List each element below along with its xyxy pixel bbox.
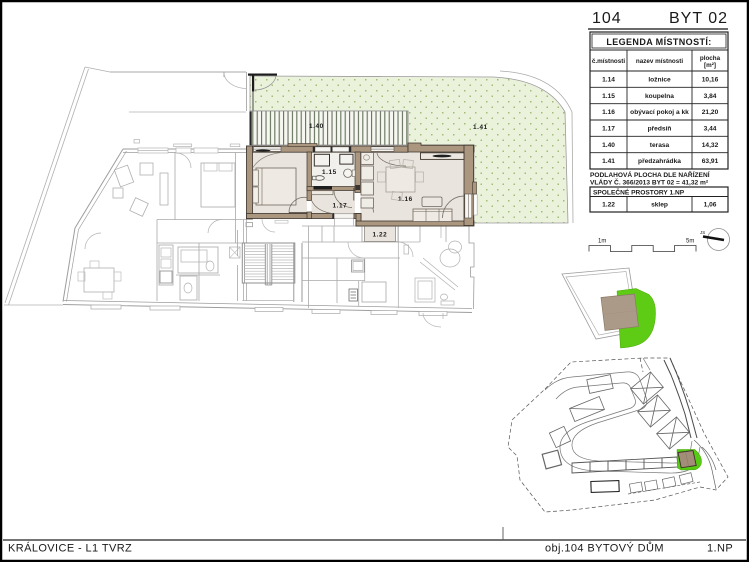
svg-text:obývací pokoj a kk: obývací pokoj a kk: [630, 109, 689, 116]
svg-text:předsíň: předsíň: [648, 126, 672, 133]
svg-text:1.22: 1.22: [373, 232, 388, 239]
svg-text:1.41: 1.41: [602, 158, 615, 165]
svg-text:5m: 5m: [686, 239, 694, 245]
svg-text:PODLAHOVÁ PLOCHA DLE NAŘÍZENÍ: PODLAHOVÁ PLOCHA DLE NAŘÍZENÍ: [590, 170, 710, 179]
svg-text:1.22: 1.22: [602, 202, 615, 209]
svg-text:21,20: 21,20: [702, 109, 719, 116]
svg-text:1.16: 1.16: [398, 196, 413, 203]
svg-text:3,44: 3,44: [704, 126, 717, 133]
svg-text:1.15: 1.15: [322, 169, 337, 176]
svg-text:plocha: plocha: [700, 55, 721, 62]
svg-text:předzahrádka: předzahrádka: [638, 158, 681, 165]
svg-text:LEGENDA MÍSTNOSTÍ:: LEGENDA MÍSTNOSTÍ:: [606, 37, 711, 47]
svg-text:1.15: 1.15: [602, 93, 615, 100]
svg-text:1.40: 1.40: [309, 123, 324, 130]
svg-text:SPOLEČNÉ PROSTORY 1.NP: SPOLEČNÉ PROSTORY 1.NP: [593, 188, 685, 197]
svg-text:104: 104: [592, 10, 622, 27]
svg-text:nazev místnosti: nazev místnosti: [636, 58, 683, 65]
svg-text:1.41: 1.41: [473, 124, 488, 131]
svg-text:č.místnosti: č.místnosti: [592, 58, 625, 65]
svg-text:obj.104 BYTOVÝ DŮM: obj.104 BYTOVÝ DŮM: [545, 542, 664, 555]
svg-text:terasa: terasa: [650, 142, 670, 149]
svg-text:KRÁLOVICE - L1 TVRZ: KRÁLOVICE - L1 TVRZ: [8, 542, 132, 555]
svg-text:10,16: 10,16: [702, 77, 719, 84]
svg-text:1.NP: 1.NP: [707, 543, 733, 555]
svg-text:sklep: sklep: [651, 202, 668, 209]
svg-text:14,32: 14,32: [702, 142, 719, 149]
svg-text:1.17: 1.17: [602, 126, 615, 133]
svg-text:1.40: 1.40: [602, 142, 615, 149]
svg-text:VLÁDY Č. 366/2013 BYT 02 = 41,: VLÁDY Č. 366/2013 BYT 02 = 41,32 m²: [590, 178, 709, 187]
svg-text:1.16: 1.16: [602, 109, 615, 116]
svg-text:1m: 1m: [598, 239, 606, 245]
svg-text:63,91: 63,91: [702, 158, 719, 165]
svg-text:[m²]: [m²]: [704, 62, 716, 69]
svg-text:1.17: 1.17: [333, 203, 348, 210]
svg-text:BYT 02: BYT 02: [669, 10, 728, 27]
svg-text:1.14: 1.14: [602, 77, 615, 84]
svg-text:ložnice: ložnice: [648, 77, 671, 84]
svg-text:koupelna: koupelna: [645, 93, 674, 100]
svg-text:1,06: 1,06: [704, 202, 717, 209]
svg-text:3,84: 3,84: [704, 93, 717, 100]
svg-text:JS: JS: [700, 230, 705, 235]
